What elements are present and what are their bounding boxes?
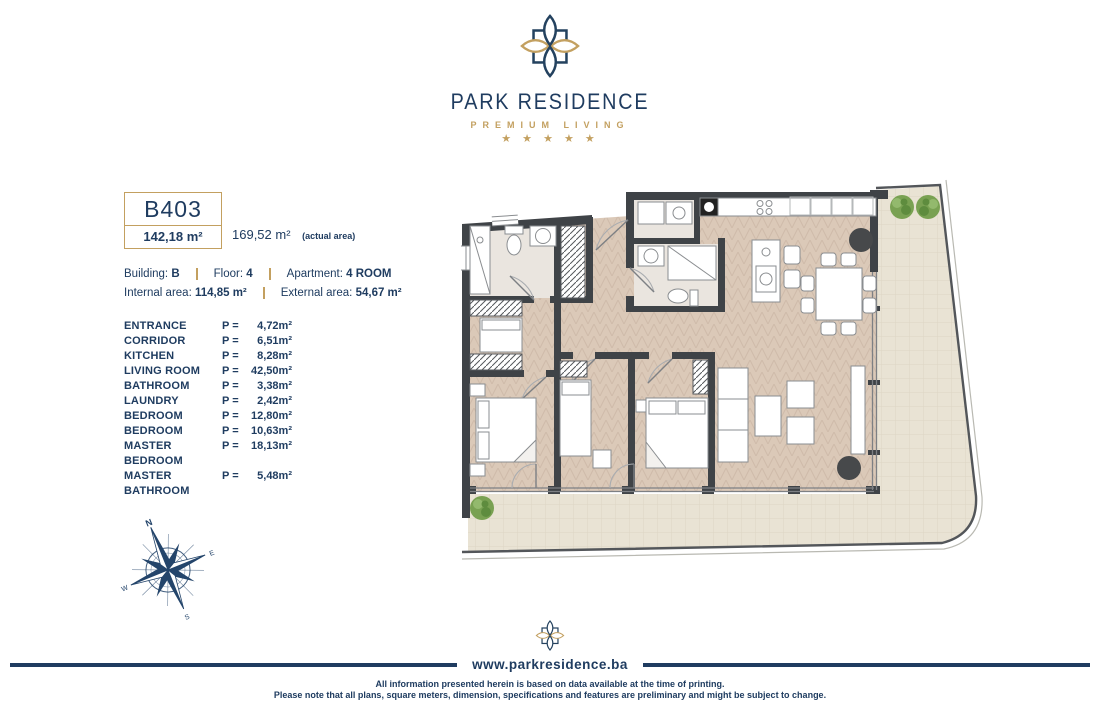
room-name: LAUNDRY	[124, 394, 222, 409]
compass-w: W	[121, 584, 130, 593]
brand-stars: ★ ★ ★ ★ ★	[0, 132, 1100, 145]
external-area-value: 54,67 m²	[356, 287, 402, 299]
master-bed	[470, 384, 536, 476]
tree-icon	[916, 195, 940, 219]
coffee-table	[755, 396, 781, 436]
room-name: MASTER BATHROOM	[124, 469, 222, 499]
room-name: CORRIDOR	[124, 334, 222, 349]
room-row: ENTRANCEP =4,72m²	[124, 319, 292, 334]
sofa	[718, 368, 748, 462]
room-area-value: 4,72m²	[246, 319, 292, 334]
room-row: KITCHENP =8,28m²	[124, 349, 292, 364]
unit-badge: B403 142,18 m²	[124, 192, 222, 249]
room-area-prefix: P =	[222, 349, 246, 364]
actual-area-note: (actual area)	[302, 231, 355, 241]
room-area-prefix: P =	[222, 394, 246, 409]
compass-rose-icon: N E S W	[114, 516, 222, 624]
unit-code: B403	[125, 193, 221, 225]
disclaimer-line-2: Please note that all plans, square meter…	[0, 690, 1100, 700]
room-area-value: 5,48m²	[246, 469, 292, 499]
room-area-value: 8,28m²	[246, 349, 292, 364]
brand-name: PARK RESIDENCE	[55, 89, 1045, 115]
building-value: B	[171, 268, 179, 280]
room-name: BEDROOM	[124, 424, 222, 439]
room-row: MASTER BATHROOMP =5,48m²	[124, 469, 292, 499]
room-row: BEDROOMP =10,63m²	[124, 424, 292, 439]
room-area-prefix: P =	[222, 319, 246, 334]
gold-divider	[263, 287, 265, 299]
room-row: MASTER BEDROOMP =18,13m²	[124, 439, 292, 469]
room-row: CORRIDORP =6,51m²	[124, 334, 292, 349]
internal-area-label: Internal area:	[124, 287, 192, 299]
floor-value: 4	[246, 268, 252, 280]
floor-plan	[450, 170, 1010, 570]
gold-divider	[196, 268, 198, 280]
room-area-value: 2,42m²	[246, 394, 292, 409]
plant-circle	[849, 228, 873, 252]
room-area-prefix: P =	[222, 439, 246, 469]
room-row: BATHROOMP =3,38m²	[124, 379, 292, 394]
room-row: LAUNDRYP =2,42m²	[124, 394, 292, 409]
room-list: ENTRANCEP =4,72m²CORRIDORP =6,51m²KITCHE…	[124, 319, 292, 499]
apartment-label: Apartment:	[287, 268, 343, 280]
room-area-value: 18,13m²	[246, 439, 292, 469]
brochure-page: PARK RESIDENCE PREMIUM LIVING ★ ★ ★ ★ ★ …	[0, 0, 1100, 720]
corridor-wardrobe	[561, 226, 585, 298]
website-link[interactable]: www.parkresidence.ba	[0, 657, 1100, 672]
room-area-prefix: P =	[222, 409, 246, 424]
tree-icon	[890, 195, 914, 219]
unit-total-area: 142,18 m²	[125, 225, 221, 248]
external-area-label: External area:	[281, 287, 353, 299]
room-area-prefix: P =	[222, 364, 246, 379]
room-area-prefix: P =	[222, 469, 246, 499]
room-area-value: 6,51m²	[246, 334, 292, 349]
room-name: LIVING ROOM	[124, 364, 222, 379]
room-area-prefix: P =	[222, 424, 246, 439]
internal-area-value: 114,85 m²	[195, 287, 247, 299]
room-name: BEDROOM	[124, 409, 222, 424]
plant-circle	[837, 456, 861, 480]
room-area-value: 42,50m²	[246, 364, 292, 379]
building-label: Building:	[124, 268, 168, 280]
actual-area: 169,52 m² (actual area)	[232, 227, 355, 242]
room-area-prefix: P =	[222, 379, 246, 394]
meta-line-1: Building: B Floor: 4 Apartment: 4 ROOM	[124, 268, 391, 280]
brand-tagline: PREMIUM LIVING	[0, 120, 1100, 130]
apartment-value: 4 ROOM	[346, 268, 391, 280]
room-name: KITCHEN	[124, 349, 222, 364]
room-name: MASTER BEDROOM	[124, 439, 222, 469]
compass-e: E	[209, 550, 216, 558]
meta-line-2: Internal area: 114,85 m² External area: …	[124, 287, 402, 299]
floor-label: Floor:	[214, 268, 243, 280]
footer-flower-icon	[0, 620, 1100, 656]
sideboard	[851, 366, 865, 454]
kitchen-counter	[700, 197, 876, 216]
room-area-value: 12,80m²	[246, 409, 292, 424]
disclaimer-line-1: All information presented herein is base…	[0, 679, 1100, 689]
room-name: ENTRANCE	[124, 319, 222, 334]
room-name: BATHROOM	[124, 379, 222, 394]
tree-icon	[470, 496, 494, 520]
room-area-prefix: P =	[222, 334, 246, 349]
room-row: LIVING ROOMP =42,50m²	[124, 364, 292, 379]
brand-flower-icon	[519, 14, 581, 78]
room-area-value: 3,38m²	[246, 379, 292, 394]
room-area-value: 10,63m²	[246, 424, 292, 439]
gold-divider	[269, 268, 271, 280]
room-row: BEDROOMP =12,80m²	[124, 409, 292, 424]
brand-header: PARK RESIDENCE PREMIUM LIVING ★ ★ ★ ★ ★	[0, 14, 1100, 145]
actual-area-value: 169,52 m²	[232, 227, 291, 242]
compass-n: N	[144, 517, 154, 529]
